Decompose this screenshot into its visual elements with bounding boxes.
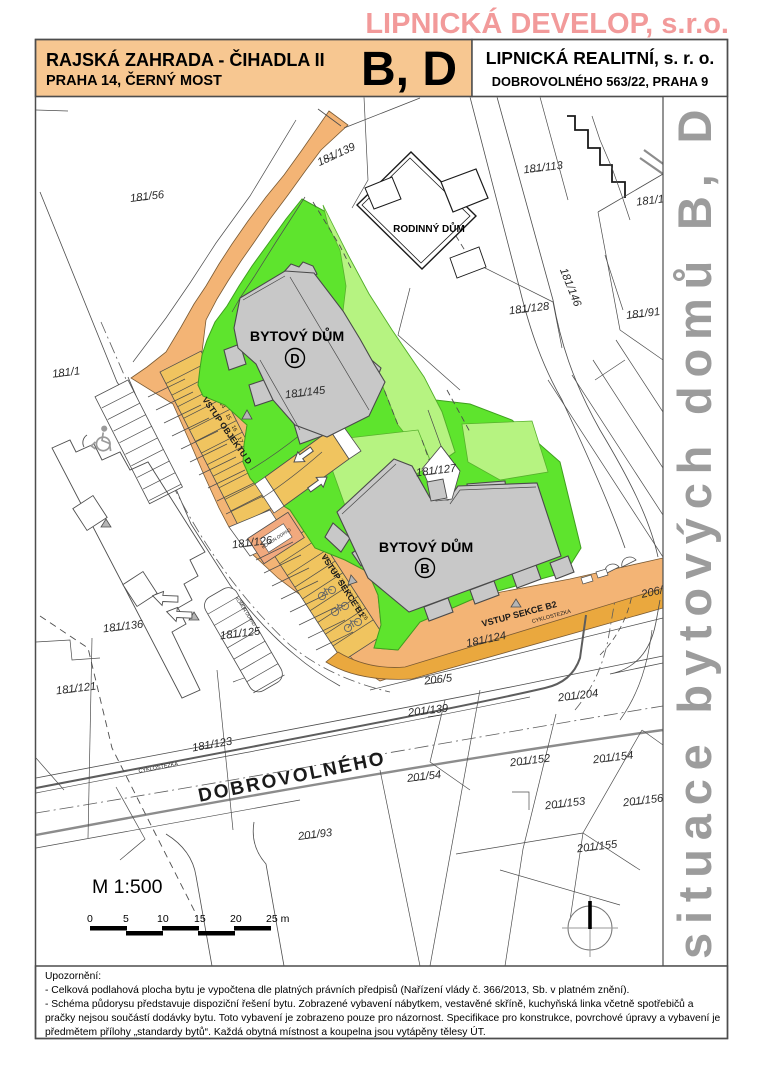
svg-text:Upozornění:: Upozornění: [45, 971, 101, 982]
svg-text:M 1:500: M 1:500 [92, 876, 163, 898]
svg-text:pračky nejsou součástí dodávky: pračky nejsou součástí dodávky bytu. Tot… [45, 1013, 720, 1024]
svg-text:situace bytových domů B, D: situace bytových domů B, D [668, 101, 721, 959]
svg-text:RAJSKÁ ZAHRADA - ČIHADLA II: RAJSKÁ ZAHRADA - ČIHADLA II [46, 49, 325, 70]
svg-text:B, D: B, D [361, 43, 457, 96]
svg-text:20: 20 [230, 913, 242, 925]
svg-text:PRAHA 14, ČERNÝ MOST: PRAHA 14, ČERNÝ MOST [46, 71, 222, 89]
svg-text:BYTOVÝ DŮM: BYTOVÝ DŮM [250, 326, 344, 345]
svg-text:- Celková podlahová plocha byt: - Celková podlahová plocha bytu je vypoč… [45, 984, 629, 996]
svg-text:D: D [290, 351, 299, 366]
svg-text:25 m: 25 m [266, 913, 290, 925]
svg-text:B: B [420, 561, 429, 576]
svg-text:LIPNICKÁ DEVELOP, s.r.o.: LIPNICKÁ DEVELOP, s.r.o. [365, 6, 729, 40]
svg-text:5: 5 [123, 913, 129, 925]
svg-text:DOBROVOLNÉHO 563/22, PRAHA 9: DOBROVOLNÉHO 563/22, PRAHA 9 [492, 74, 708, 89]
svg-text:10: 10 [157, 913, 169, 925]
svg-text:LIPNICKÁ REALITNÍ, s. r. o.: LIPNICKÁ REALITNÍ, s. r. o. [486, 47, 715, 68]
svg-text:předmětem přílohy „standardy b: předmětem přílohy „standardy bytů“. Každ… [45, 1025, 486, 1038]
svg-text:0: 0 [87, 913, 93, 925]
svg-text:15: 15 [194, 913, 206, 925]
svg-text:RODINNÝ DŮM: RODINNÝ DŮM [393, 221, 465, 235]
svg-text:- Schéma půdorysu představuje: - Schéma půdorysu představuje dispoziční… [45, 998, 694, 1010]
svg-text:BYTOVÝ DŮM: BYTOVÝ DŮM [379, 537, 473, 556]
